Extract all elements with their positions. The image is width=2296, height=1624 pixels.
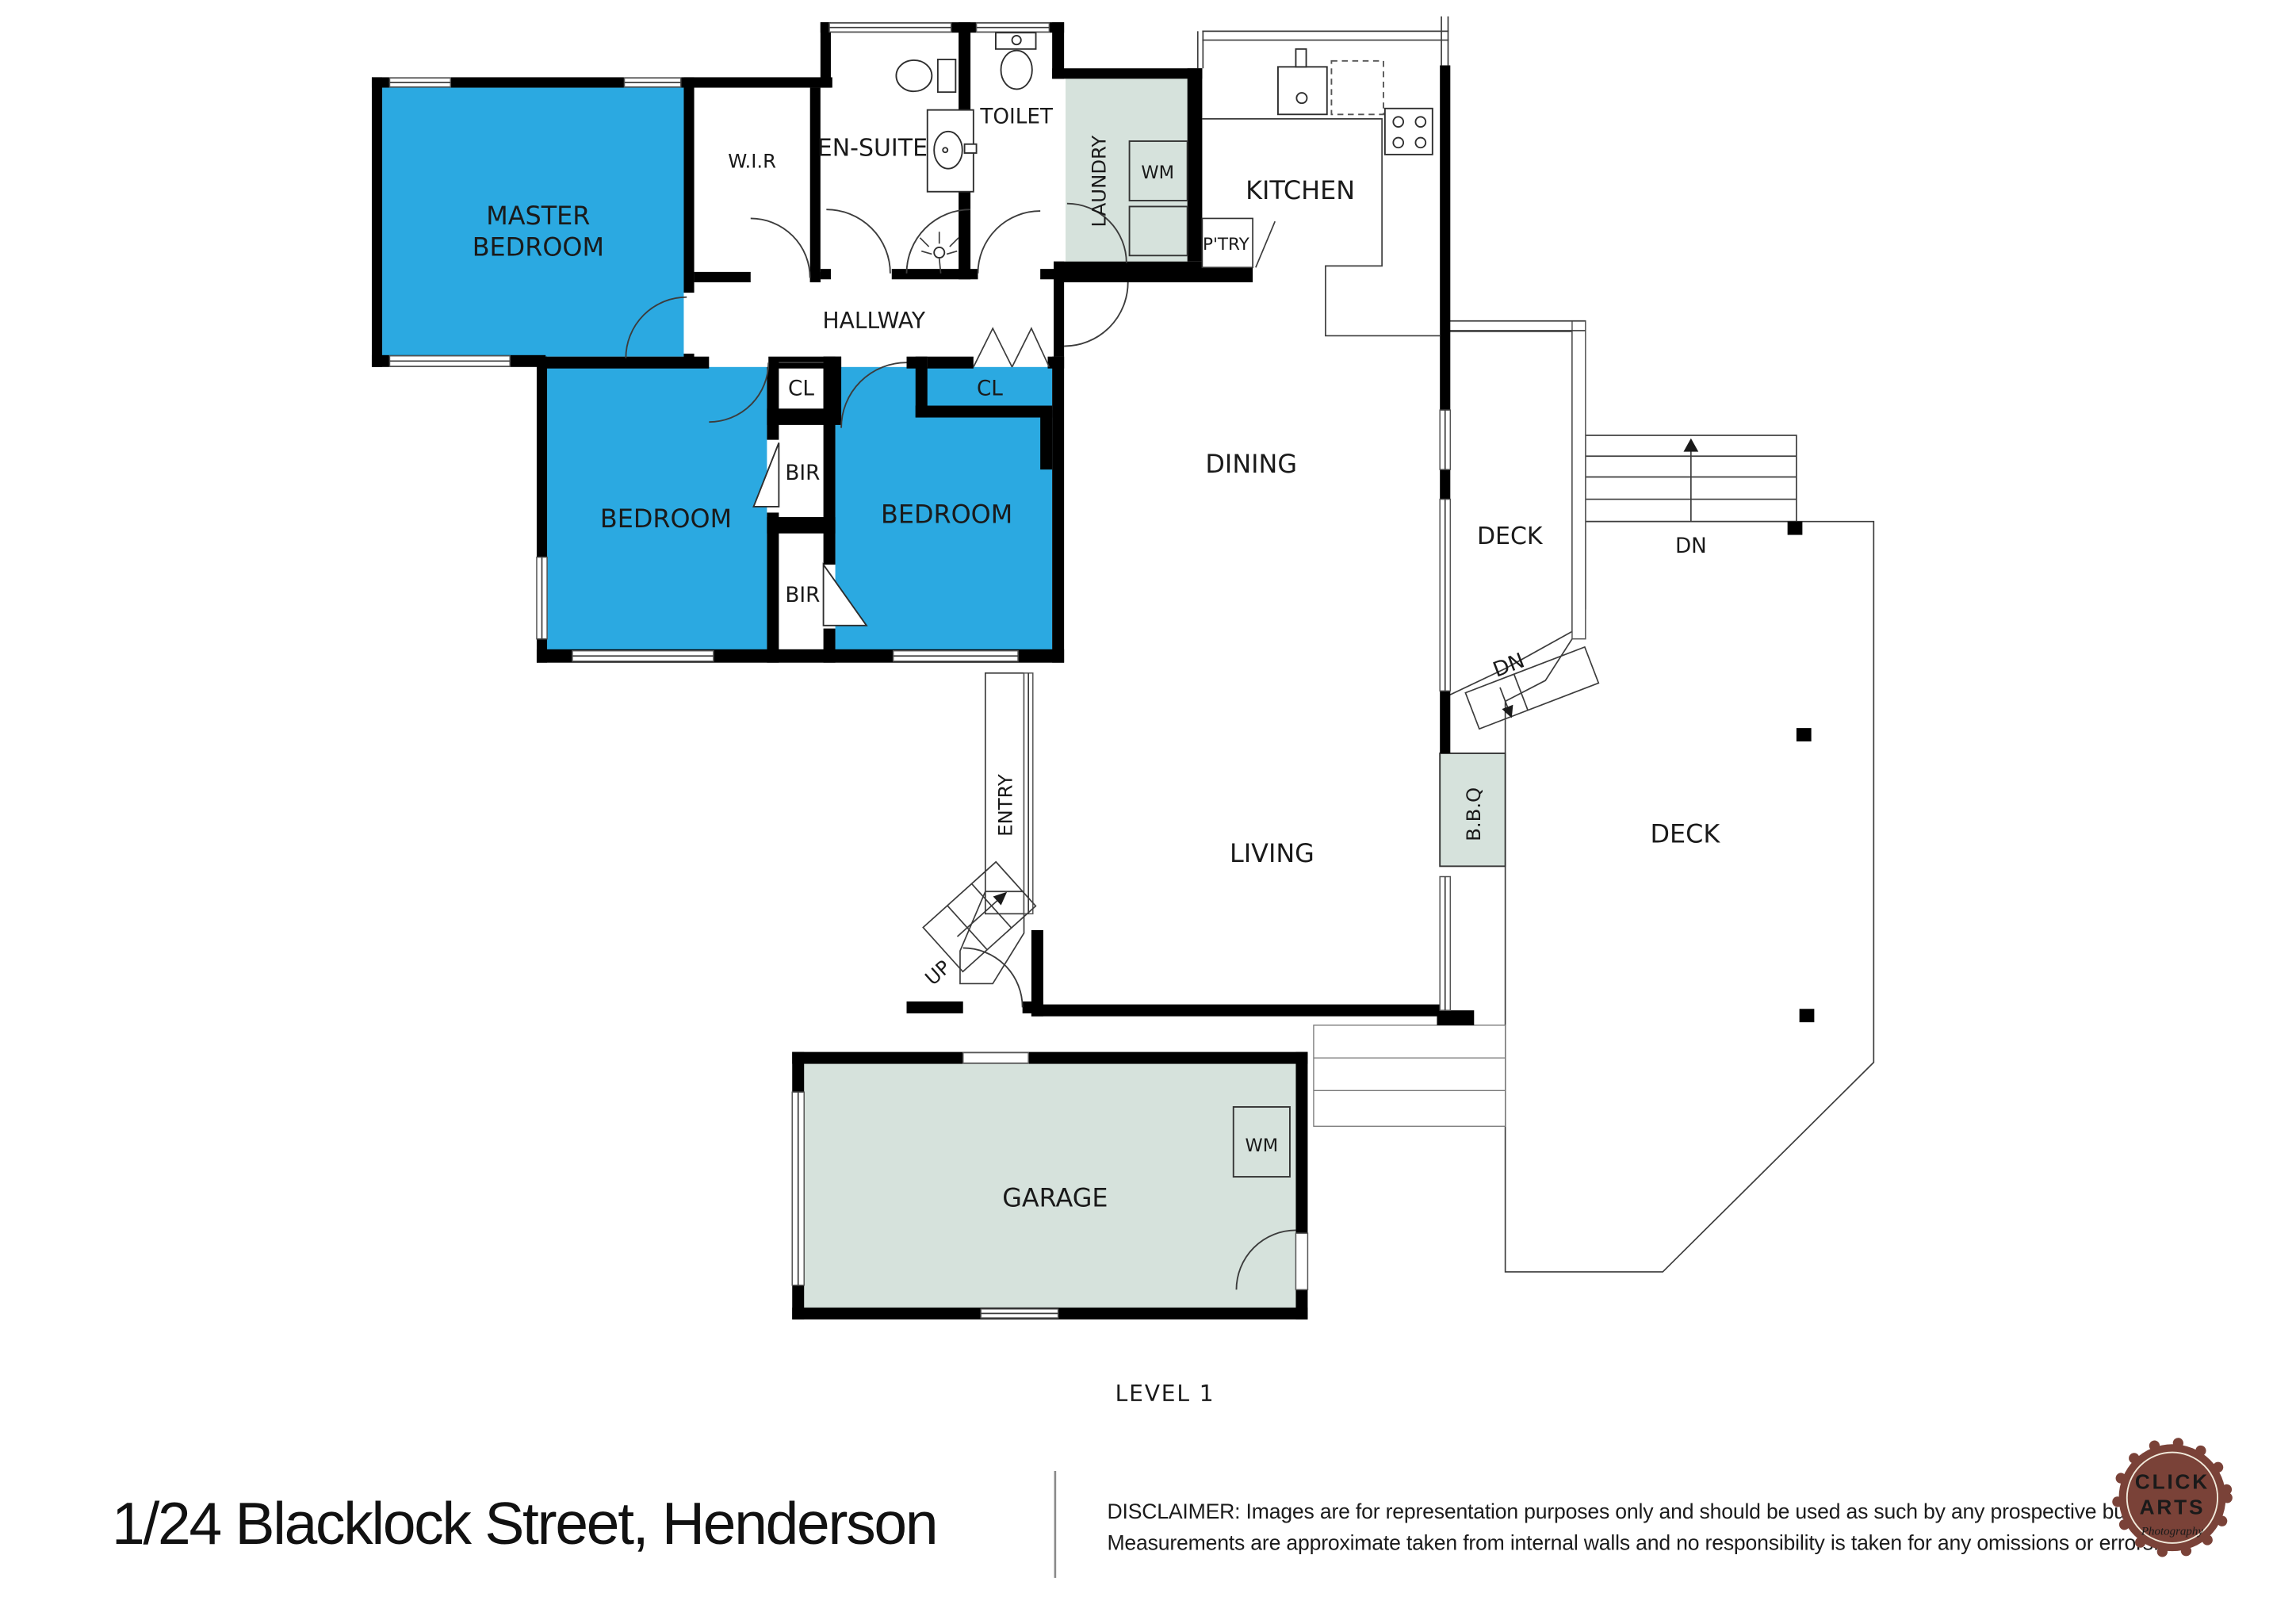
stove-icon <box>1385 109 1433 155</box>
sink-drain <box>1296 93 1307 103</box>
basin-tap <box>965 144 977 153</box>
label-bedroom-left: BEDROOM <box>600 504 732 534</box>
toilet-door-arc <box>978 211 1040 274</box>
dining-door-arc <box>1064 282 1128 347</box>
footer-address: 1/24 Blacklock Street, Henderson <box>112 1490 936 1557</box>
floorplan-page: MASTER BEDROOM W.I.R EN-SUITE TOILET LAU… <box>0 0 2296 1624</box>
label-toilet: TOILET <box>979 105 1054 129</box>
fridge-space <box>1331 61 1383 114</box>
label-ensuite: EN-SUITE <box>817 135 928 163</box>
front-door-arc <box>963 948 1023 1007</box>
deck-upper-fill <box>1448 331 1572 695</box>
deck-post <box>1800 1009 1815 1022</box>
label-deck-upper: DECK <box>1477 523 1544 550</box>
label-entry: ENTRY <box>994 774 1017 837</box>
deck-ramp <box>1465 647 1599 730</box>
footer-disclaimer-line2: Measurements are approximate taken from … <box>1107 1530 2159 1554</box>
up-arrow-shaft <box>957 895 1003 937</box>
pantry-door-leaf <box>1256 221 1275 267</box>
path-to-deck <box>1314 1025 1506 1126</box>
shower-icon <box>920 232 959 273</box>
logo-word2: ARTS <box>2140 1495 2206 1519</box>
label-master-bedroom-2: BEDROOM <box>473 232 604 262</box>
ramp-divider <box>1514 674 1528 710</box>
label-dn-stairs: DN <box>1675 534 1707 558</box>
label-cl-right: CL <box>977 377 1003 400</box>
ensuite-toilet-tank <box>938 59 955 92</box>
logo-word1: CLICK <box>2135 1469 2210 1493</box>
sink-tap <box>1295 49 1306 67</box>
dryer-box <box>1130 206 1188 255</box>
label-laundry: LAUNDRY <box>1088 136 1111 228</box>
label-wir: W.I.R <box>728 150 776 173</box>
label-cl-left: CL <box>788 377 814 400</box>
wir-door-arc <box>751 218 810 278</box>
label-bbq: B.B.Q <box>1462 787 1485 841</box>
deck-main-fill <box>1506 522 1874 1272</box>
footer-disclaimer-line1: DISCLAIMER: Images are for representatio… <box>1107 1500 2158 1523</box>
label-dn-ramp: DN <box>1490 649 1528 682</box>
ensuite-toilet-icon <box>896 60 932 91</box>
deck-post <box>1797 728 1812 741</box>
deck-stairs <box>1586 435 1797 522</box>
label-level: LEVEL 1 <box>1115 1381 1215 1407</box>
label-deck-main: DECK <box>1650 818 1720 848</box>
stairs-arrow-head <box>1683 439 1698 452</box>
label-kitchen: KITCHEN <box>1246 175 1355 205</box>
label-master-bedroom-1: MASTER <box>486 201 590 231</box>
label-up: UP <box>920 956 955 990</box>
label-dining: DINING <box>1205 449 1297 479</box>
kitchen-sink <box>1278 67 1327 114</box>
deck-walkway <box>1572 321 1586 639</box>
label-bedroom-right: BEDROOM <box>881 500 1012 530</box>
ensuite-door-arc <box>826 209 890 274</box>
cl-right-bifold-doors <box>974 328 1050 367</box>
deck-post <box>1788 522 1803 535</box>
label-bir-upper: BIR <box>785 462 820 485</box>
label-pantry: P'TRY <box>1203 235 1250 255</box>
toilet-button <box>1012 36 1021 44</box>
label-hallway: HALLWAY <box>823 308 926 334</box>
label-bir-lower: BIR <box>785 584 820 607</box>
label-garage: GARAGE <box>1002 1182 1108 1212</box>
toilet-bowl-icon <box>1001 51 1031 90</box>
label-wm-laundry: WM <box>1141 163 1174 183</box>
logo-subtitle: Photography <box>2141 1526 2204 1538</box>
label-wm-garage: WM <box>1246 1136 1279 1156</box>
basin-drain <box>943 147 947 152</box>
floorplan-svg: MASTER BEDROOM W.I.R EN-SUITE TOILET LAU… <box>0 0 2296 1624</box>
label-living: LIVING <box>1230 838 1314 868</box>
